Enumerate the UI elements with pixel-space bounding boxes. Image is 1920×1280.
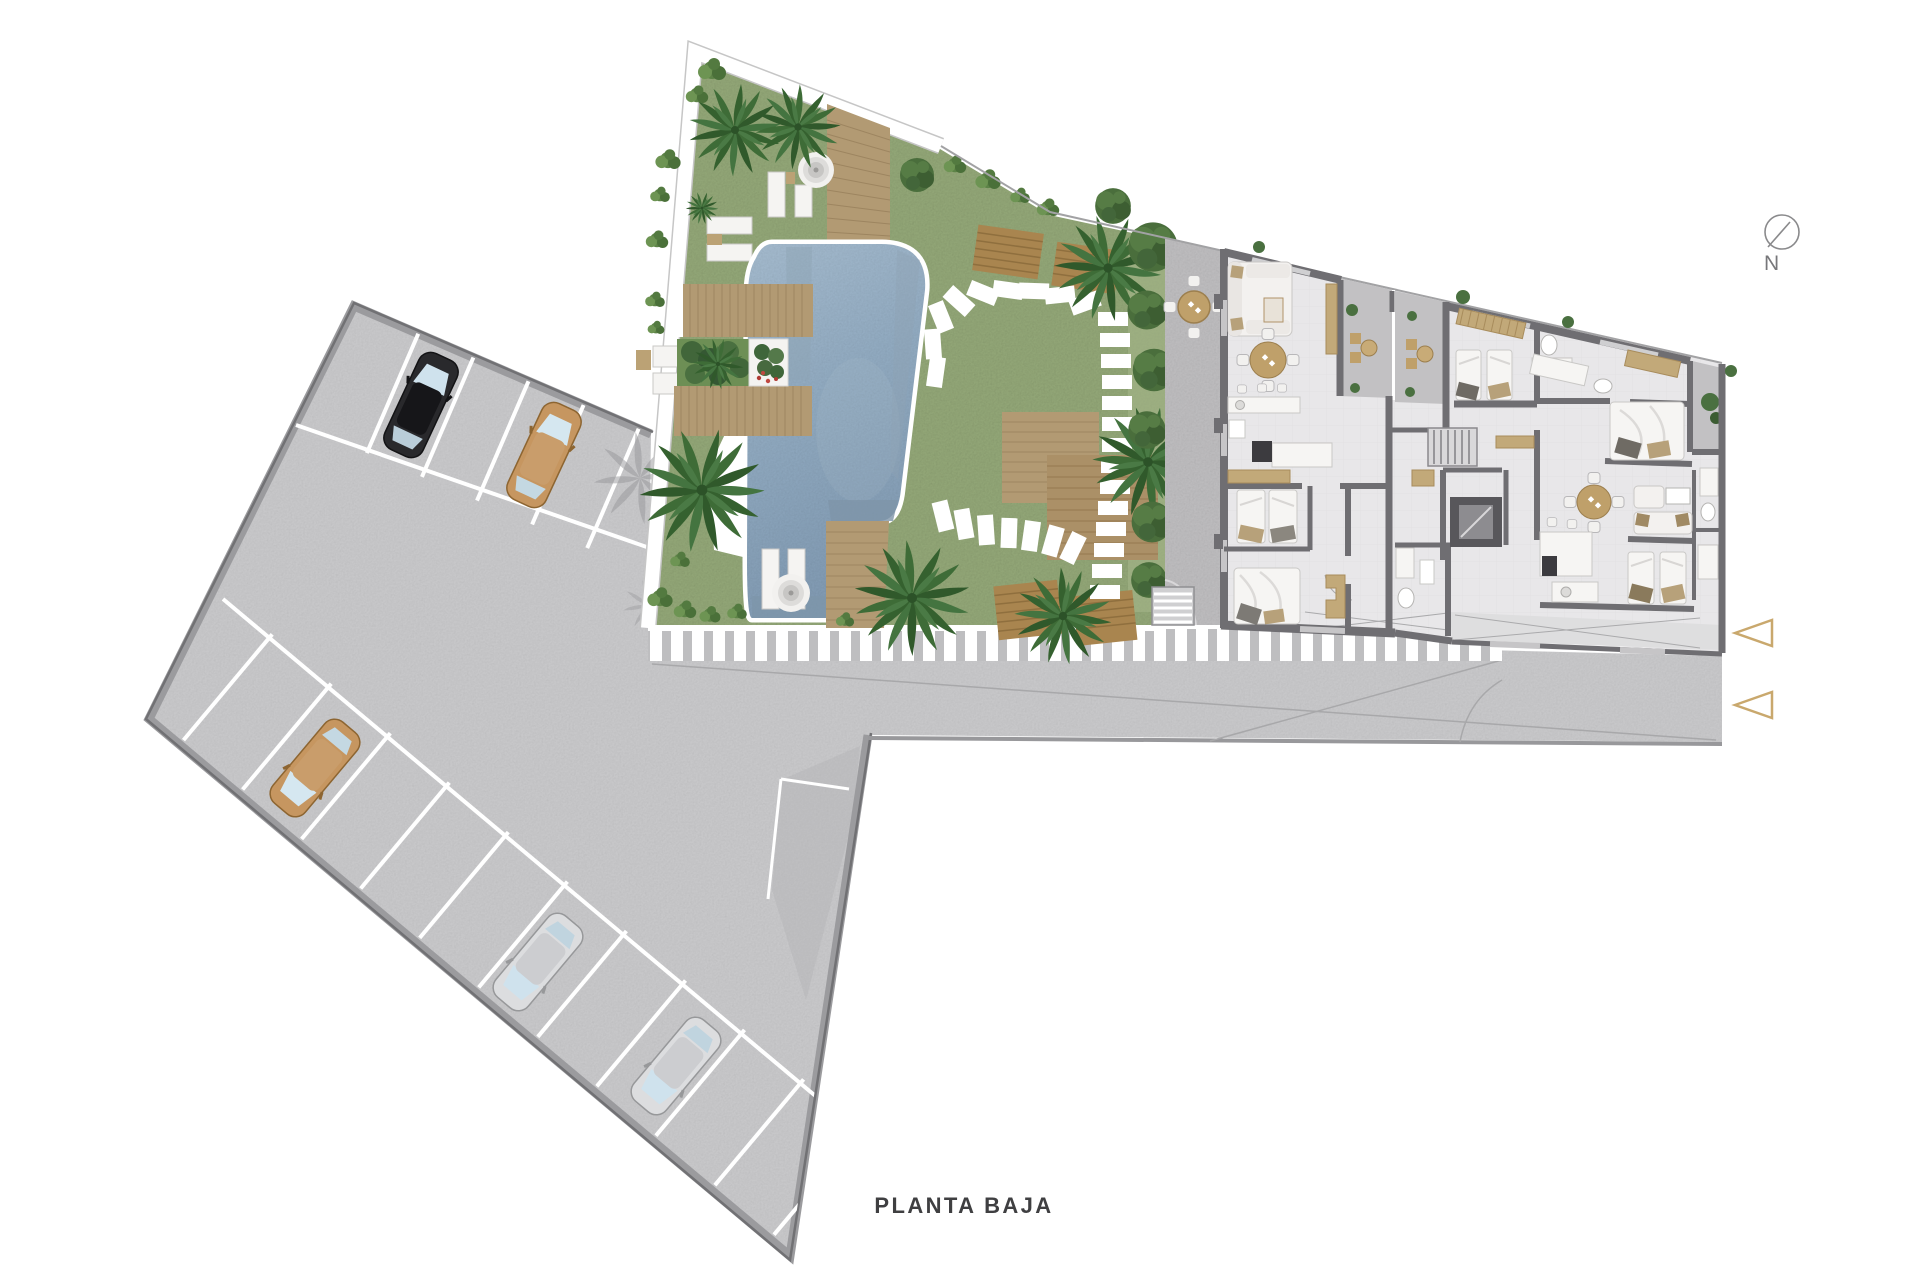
svg-text:N: N: [1764, 252, 1779, 275]
